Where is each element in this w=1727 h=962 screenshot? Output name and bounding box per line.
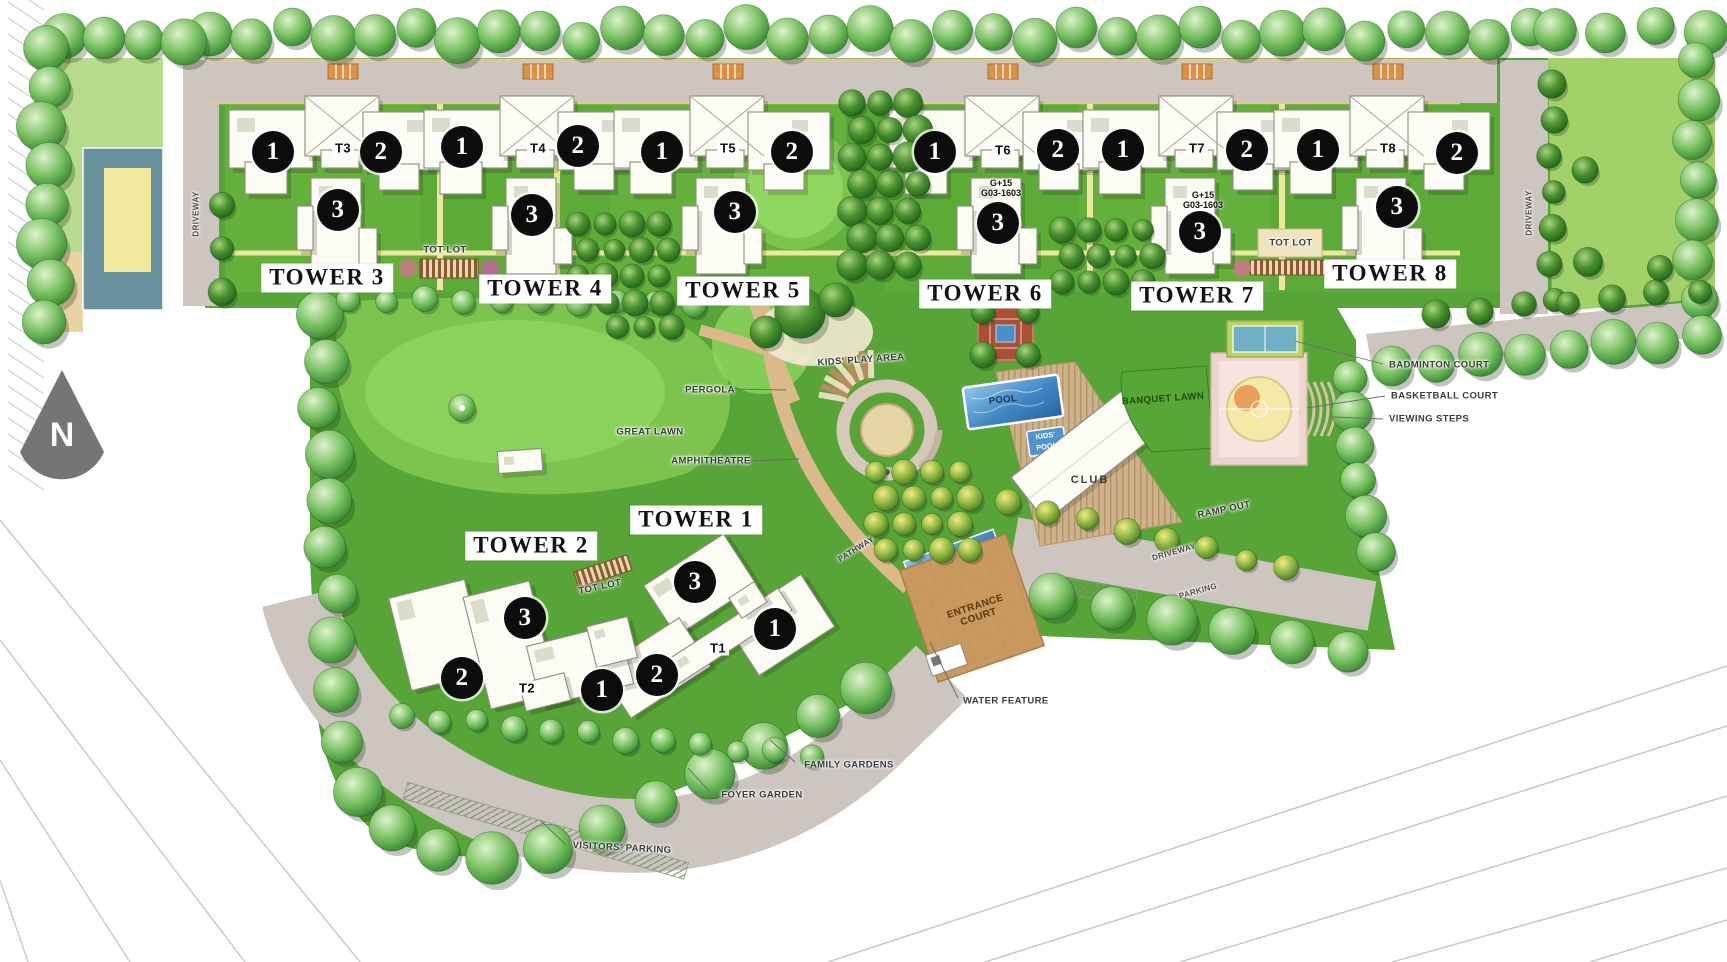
label-badminton-court: BADMINTON COURT [1389,360,1489,371]
tower-note-units: G03-1603 [981,188,1021,198]
unit-marker-t4-3[interactable]: 3 [511,194,553,236]
label-foyer-garden: FOYER GARDEN [721,790,802,801]
unit-marker-t1-1[interactable]: 1 [754,608,796,650]
tower-label-tower-4[interactable]: TOWER 4 [479,275,611,304]
label-driveway-west: DRIVEWAY [192,191,201,236]
unit-marker-t2-3[interactable]: 3 [504,597,546,639]
unit-marker-t3-2[interactable]: 2 [360,131,402,173]
tower-label-tower-1[interactable]: TOWER 1 [630,506,762,535]
basketball-court [1211,353,1307,465]
label-basketball-court: BASKETBALL COURT [1391,391,1498,402]
label-driveway-east: DRIVEWAY [1525,190,1534,235]
tower-code-t2: T2 [516,681,538,696]
label-amphitheatre: AMPHITHEATRE [671,456,751,467]
label-pergola: PERGOLA [685,385,735,396]
unit-marker-t5-3[interactable]: 3 [714,191,756,233]
unit-marker-t8-2[interactable]: 2 [1436,132,1478,174]
tower-code-t1: T1 [707,641,729,656]
tower-label-tower-8[interactable]: TOWER 8 [1324,260,1456,289]
unit-marker-t3-3[interactable]: 3 [317,189,359,231]
tower-code-t5: T5 [717,141,739,156]
tower-label-tower-6[interactable]: TOWER 6 [919,280,1051,309]
label-family-gardens: FAMILY GARDENS [804,760,894,771]
tower-note-t7: G+15G03-1603 [1183,190,1223,210]
unit-marker-t2-1[interactable]: 1 [581,669,623,711]
unit-marker-t6-3[interactable]: 3 [977,202,1019,244]
unit-marker-t4-2[interactable]: 2 [557,125,599,167]
unit-marker-t8-1[interactable]: 1 [1297,129,1339,171]
tower-note-floors: G+15 [981,178,1021,188]
label-tot-lot-2: TOT LOT [1269,238,1312,249]
tower-note-t6: G+15G03-1603 [981,178,1021,198]
label-viewing-steps: VIEWING STEPS [1389,414,1469,425]
tower-note-floors: G+15 [1183,190,1223,200]
unit-marker-t7-2[interactable]: 2 [1226,129,1268,171]
unit-marker-t7-3[interactable]: 3 [1179,211,1221,253]
tower-label-tower-2[interactable]: TOWER 2 [465,532,597,561]
unit-marker-t4-1[interactable]: 1 [441,126,483,168]
label-tot-lot-1: TOT LOT [423,245,466,256]
tower-code-t8: T8 [1377,141,1399,156]
tower-label-tower-3[interactable]: TOWER 3 [261,264,393,293]
tower-code-t4: T4 [527,141,549,156]
unit-marker-t8-3[interactable]: 3 [1376,186,1418,228]
site-plan: N TOWER 1T1123TOWER 2T2123TOWER 3T3123TO… [0,0,1727,962]
unit-marker-t1-3[interactable]: 3 [674,561,716,603]
tower-label-tower-7[interactable]: TOWER 7 [1131,282,1263,311]
unit-marker-t6-2[interactable]: 2 [1037,129,1079,171]
tower-note-units: G03-1603 [1183,200,1223,210]
unit-marker-t7-1[interactable]: 1 [1102,129,1144,171]
label-great-lawn: GREAT LAWN [616,427,683,438]
lawn-pavilion [497,448,547,478]
label-water-feature: WATER FEATURE [963,696,1049,707]
badminton-court [1227,321,1303,357]
label-kids-pool: KIDS' POOL [1028,428,1065,455]
unit-marker-t5-2[interactable]: 2 [771,131,813,173]
tower-code-t6: T6 [992,143,1014,158]
tower-label-tower-5[interactable]: TOWER 5 [677,277,809,306]
unit-marker-t5-1[interactable]: 1 [641,131,683,173]
unit-marker-t6-1[interactable]: 1 [914,131,956,173]
tower-code-t3: T3 [332,141,354,156]
tower-code-t7: T7 [1186,141,1208,156]
unit-marker-t1-2[interactable]: 2 [636,654,678,696]
compass-north-label: N [50,416,75,454]
label-club: CLUB [1071,474,1110,486]
unit-marker-t3-1[interactable]: 1 [252,131,294,173]
unit-marker-t2-2[interactable]: 2 [441,657,483,699]
